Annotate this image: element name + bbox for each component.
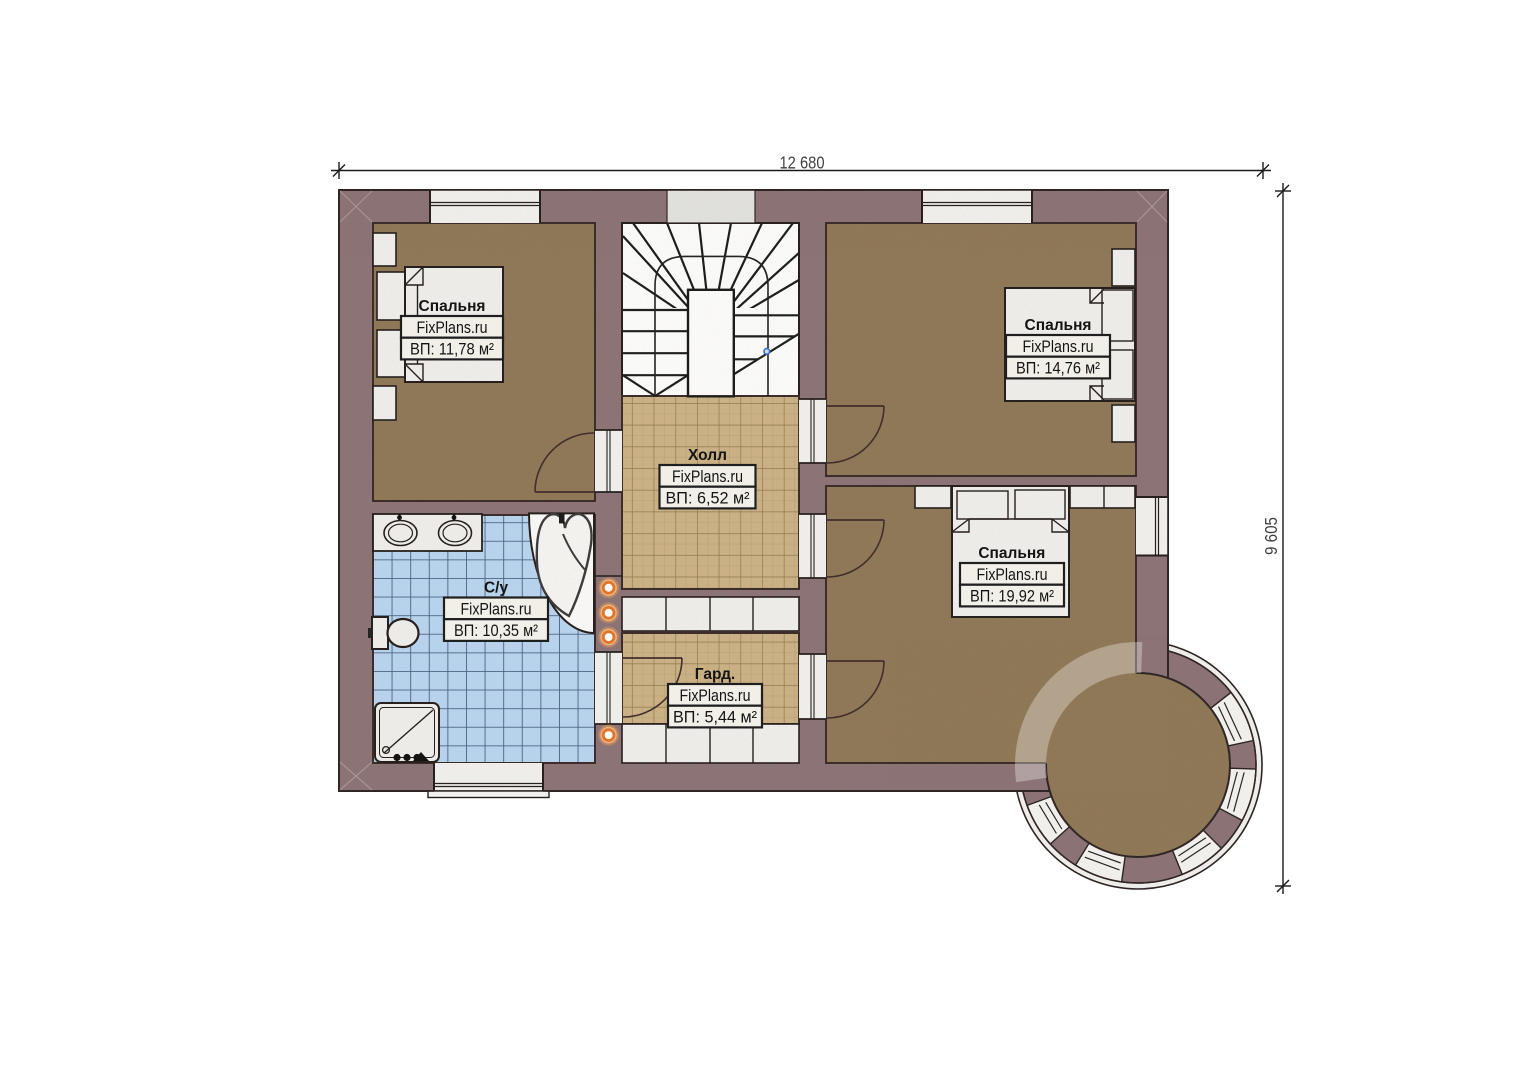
svg-text:ВП: 6,52 м²: ВП: 6,52 м² [666,489,750,508]
svg-text:Спальня: Спальня [419,298,486,315]
svg-text:ВП: 10,35 м²: ВП: 10,35 м² [454,621,538,640]
svg-text:ВП: 5,44 м²: ВП: 5,44 м² [673,708,757,727]
svg-text:Гард.: Гард. [695,666,735,683]
svg-text:FixPlans.ru: FixPlans.ru [680,686,751,705]
svg-text:С/у: С/у [484,580,509,597]
svg-text:Спальня: Спальня [978,545,1045,562]
svg-text:Холл: Холл [688,447,727,464]
svg-text:9 605: 9 605 [1261,517,1281,555]
svg-text:ВП: 11,78 м²: ВП: 11,78 м² [410,340,494,359]
svg-text:12 680: 12 680 [780,153,825,173]
svg-text:FixPlans.ru: FixPlans.ru [977,565,1048,584]
svg-text:Спальня: Спальня [1025,317,1092,334]
svg-text:ВП: 14,76 м²: ВП: 14,76 м² [1016,359,1100,378]
svg-text:FixPlans.ru: FixPlans.ru [1023,337,1094,356]
svg-text:ВП: 19,92 м²: ВП: 19,92 м² [970,587,1054,606]
svg-text:FixPlans.ru: FixPlans.ru [461,600,532,619]
svg-text:FixPlans.ru: FixPlans.ru [417,318,488,337]
svg-text:FixPlans.ru: FixPlans.ru [672,467,743,486]
